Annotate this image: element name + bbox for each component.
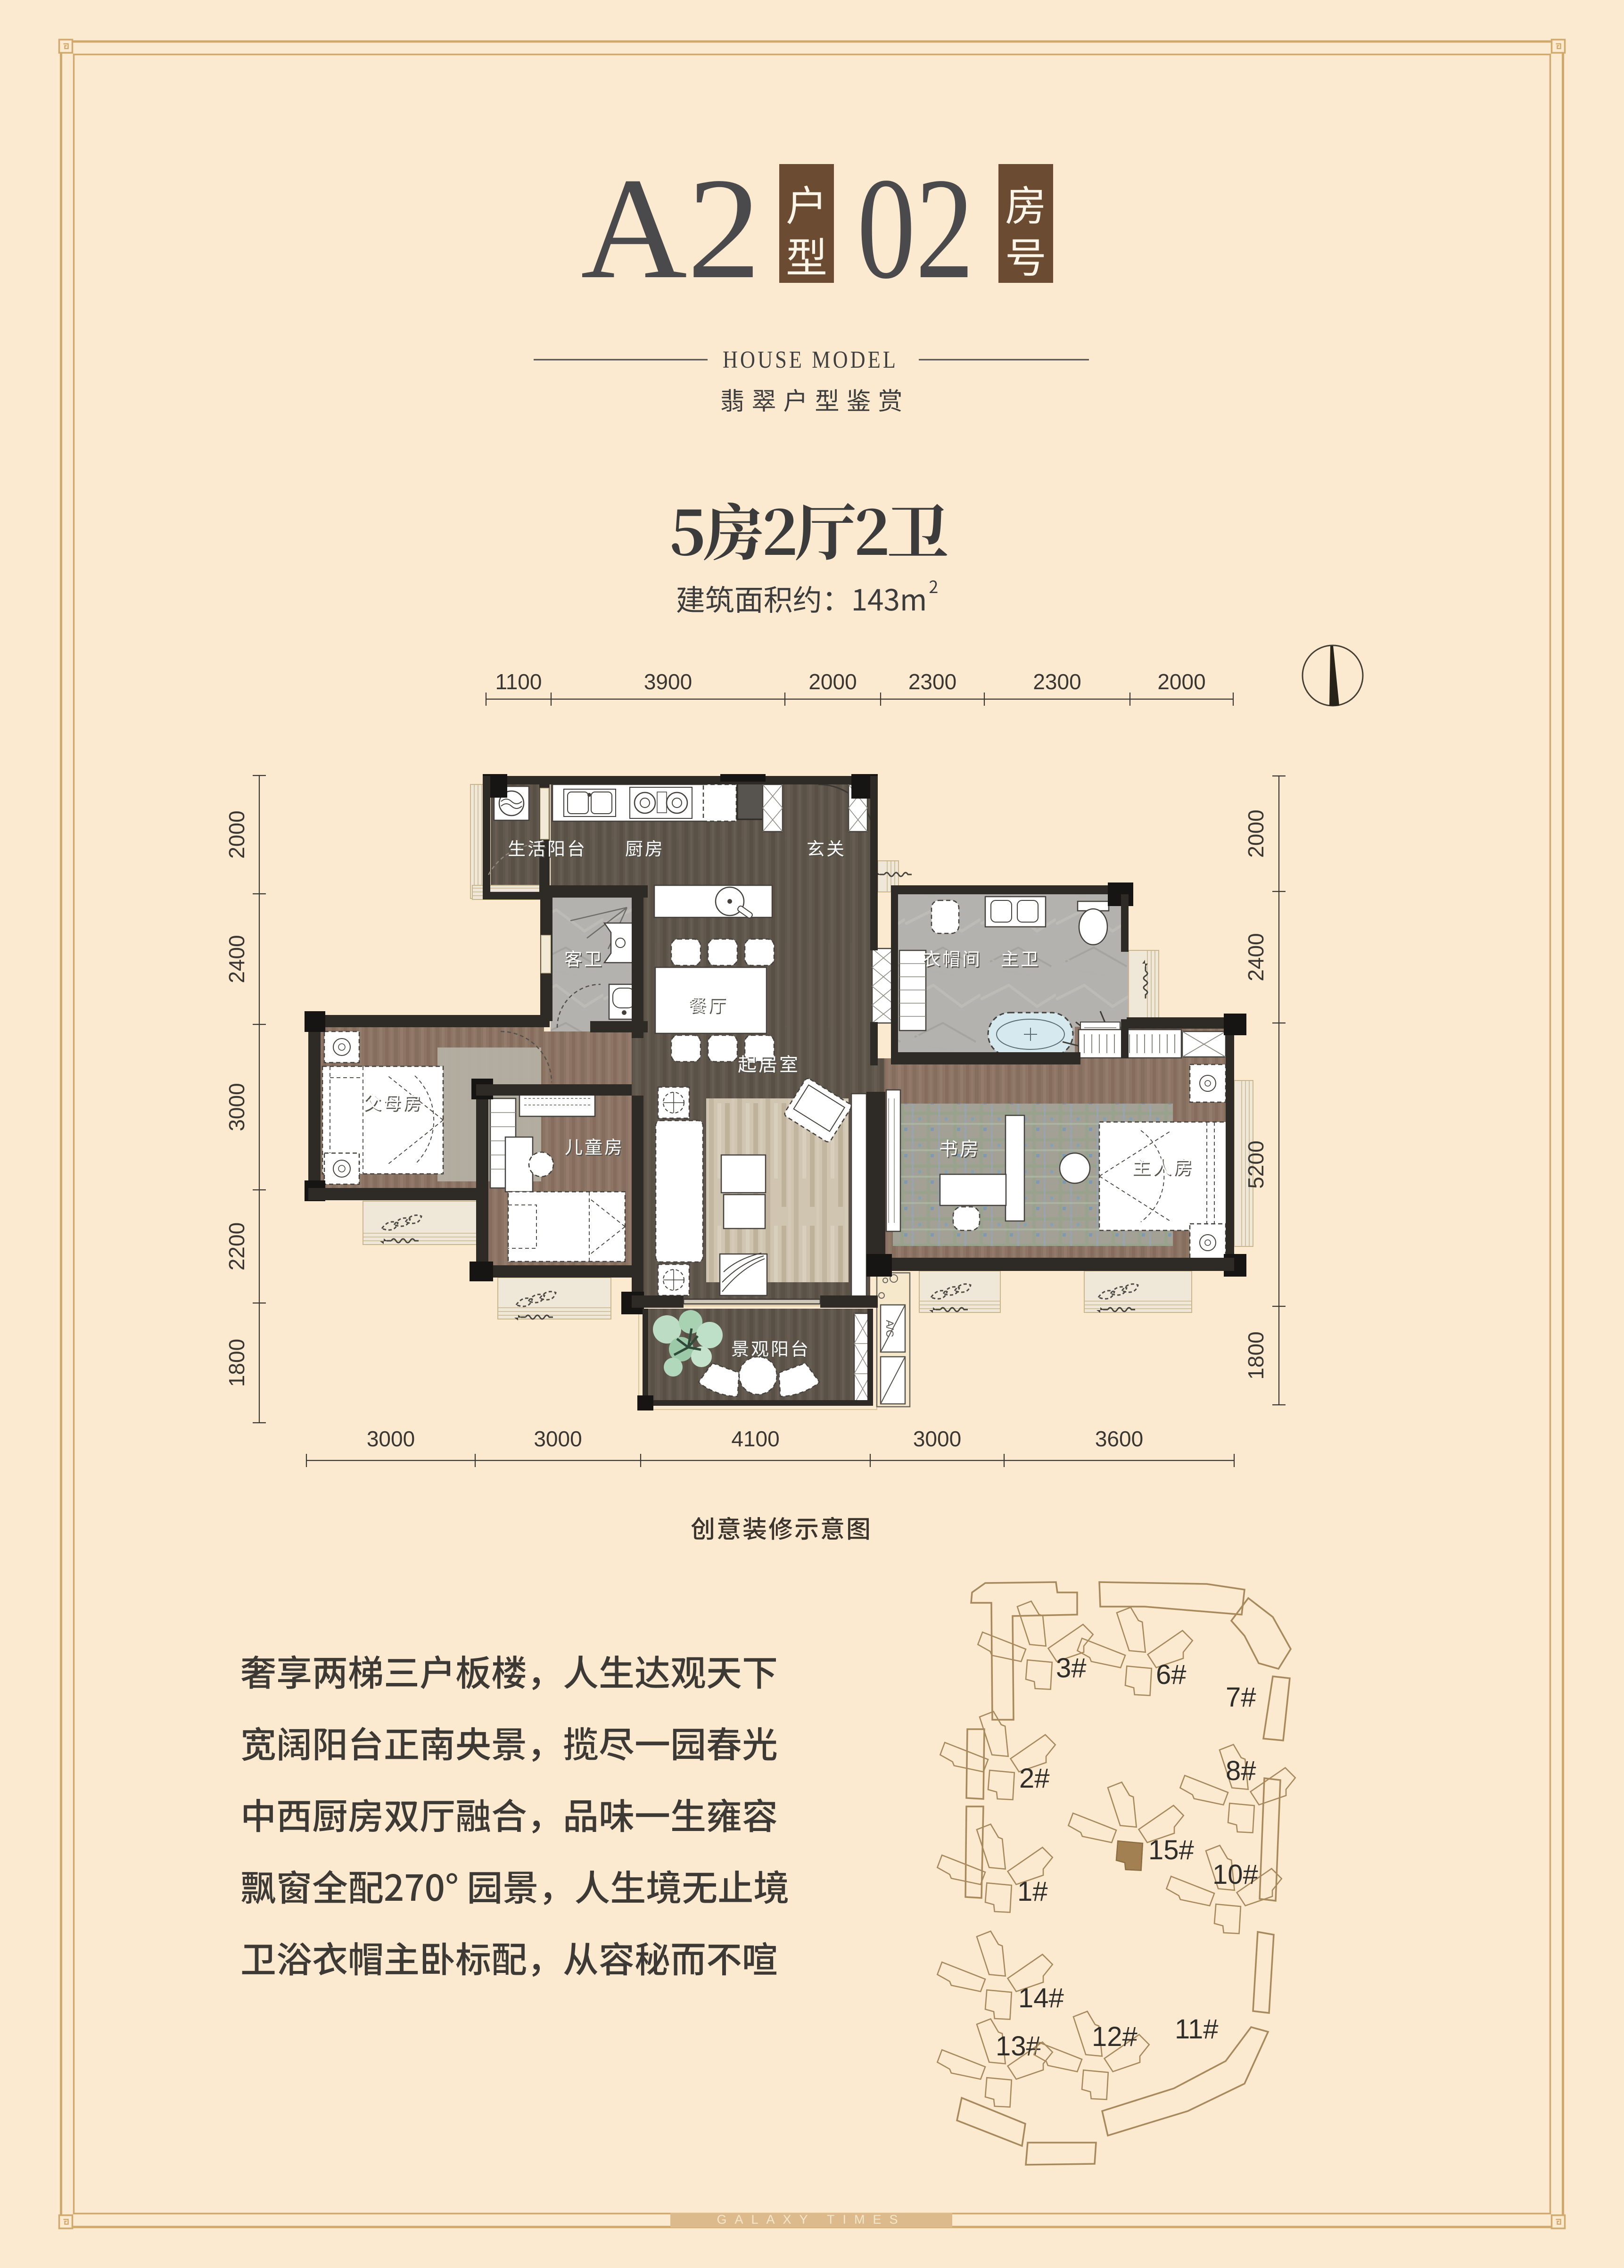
svg-text:6#: 6# (1156, 1659, 1187, 1690)
svg-text:2400: 2400 (1244, 933, 1268, 981)
svg-text:3000: 3000 (913, 1427, 961, 1451)
svg-text:2300: 2300 (908, 669, 956, 694)
svg-text:8#: 8# (1226, 1756, 1256, 1786)
svg-text:3600: 3600 (1095, 1427, 1143, 1451)
svg-text:2400: 2400 (224, 935, 249, 983)
svg-text:15#: 15# (1148, 1835, 1194, 1865)
svg-text:13#: 13# (996, 2031, 1041, 2062)
svg-text:11#: 11# (1175, 2014, 1218, 2045)
svg-text:1#: 1# (1017, 1876, 1048, 1907)
svg-text:2000: 2000 (224, 810, 249, 858)
svg-text:2300: 2300 (1033, 669, 1081, 694)
svg-text:A/C: A/C (884, 1320, 896, 1337)
svg-text:2000: 2000 (808, 669, 857, 694)
svg-text:2200: 2200 (224, 1222, 249, 1270)
svg-text:3000: 3000 (367, 1427, 415, 1451)
svg-text:HOUSE MODEL: HOUSE MODEL (723, 346, 898, 373)
svg-text:A2: A2 (581, 148, 761, 309)
svg-text:2#: 2# (1019, 1763, 1050, 1794)
svg-text:7#: 7# (1226, 1682, 1256, 1713)
svg-text:2000: 2000 (1244, 809, 1268, 858)
svg-text:5200: 5200 (1244, 1140, 1268, 1188)
svg-text:3000: 3000 (224, 1083, 249, 1131)
svg-text:1100: 1100 (495, 669, 542, 694)
svg-text:GALAXY TIMES: GALAXY TIMES (717, 2212, 906, 2227)
svg-text:3900: 3900 (644, 669, 692, 694)
svg-text:2000: 2000 (1157, 669, 1205, 694)
svg-text:1800: 1800 (1244, 1331, 1268, 1379)
svg-text:10#: 10# (1212, 1859, 1258, 1890)
svg-text:3#: 3# (1056, 1653, 1087, 1683)
svg-text:02: 02 (857, 148, 974, 309)
svg-text:1800: 1800 (224, 1339, 249, 1387)
svg-text:4100: 4100 (731, 1427, 779, 1451)
svg-text:3000: 3000 (534, 1427, 582, 1451)
svg-text:14#: 14# (1018, 1983, 1064, 2013)
svg-text:12#: 12# (1092, 2021, 1138, 2052)
